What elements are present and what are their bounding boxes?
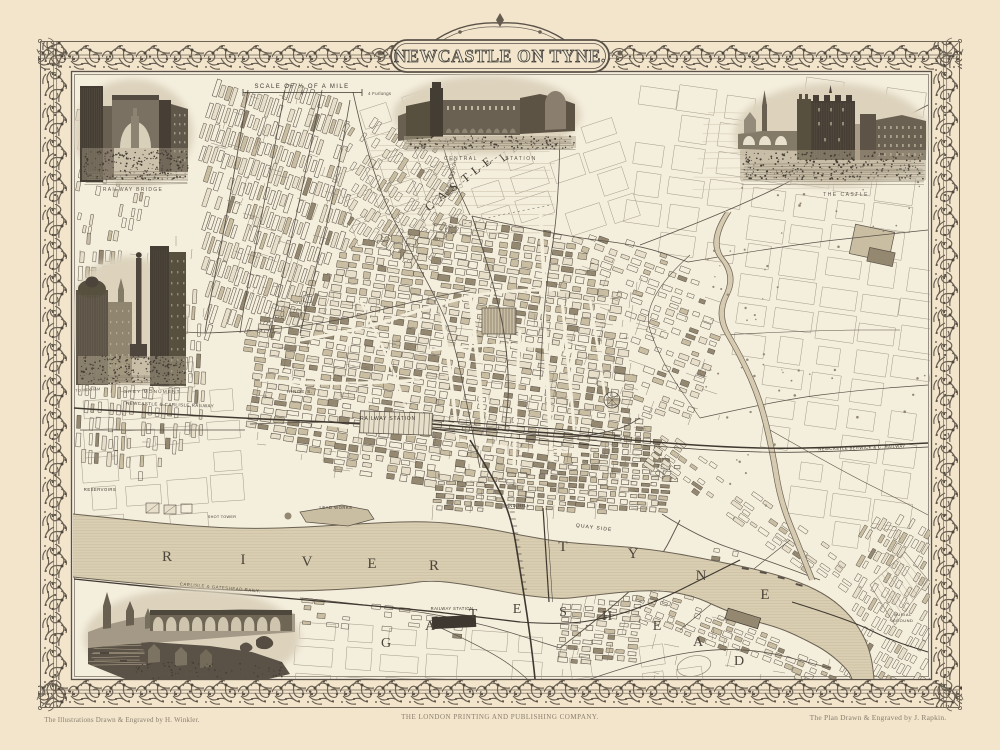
svg-text:A: A <box>693 635 704 650</box>
svg-text:D: D <box>734 654 744 669</box>
svg-text:SCALE OF ¼ OF A MILE: SCALE OF ¼ OF A MILE <box>254 84 349 90</box>
svg-text:RAILWAY STATION: RAILWAY STATION <box>431 606 474 611</box>
svg-text:LEAD WORKS: LEAD WORKS <box>320 505 353 510</box>
svg-text:V: V <box>302 554 313 570</box>
svg-text:R: R <box>162 549 172 565</box>
svg-text:Y: Y <box>628 546 639 562</box>
svg-text:THE LONDON PRINTING AND PUBLIS: THE LONDON PRINTING AND PUBLISHING COMPA… <box>401 713 599 721</box>
svg-text:S: S <box>559 605 567 620</box>
svg-text:BURIAL: BURIAL <box>894 612 912 617</box>
svg-text:E: E <box>760 587 769 603</box>
svg-text:HINDE S.: HINDE S. <box>287 389 313 394</box>
svg-text:A: A <box>425 619 436 634</box>
svg-text:CENTRAL: CENTRAL <box>444 156 478 162</box>
svg-text:T: T <box>558 539 567 555</box>
svg-text:4 Furlongs: 4 Furlongs <box>368 91 392 96</box>
svg-text:SAND HILL: SAND HILL <box>502 503 529 508</box>
svg-text:H: H <box>602 609 612 624</box>
svg-text:SHOT TOWER: SHOT TOWER <box>208 515 237 519</box>
svg-text:RESERVOIRS: RESERVOIRS <box>84 487 116 492</box>
svg-text:E: E <box>513 602 522 617</box>
svg-text:NEWCASTLE ON TYNE.: NEWCASTLE ON TYNE. <box>394 46 606 66</box>
svg-text:GROUND: GROUND <box>893 618 914 623</box>
svg-text:STATION: STATION <box>505 156 536 162</box>
svg-text:GREY MONUMENT: GREY MONUMENT <box>123 389 180 395</box>
svg-text:I: I <box>241 552 246 568</box>
svg-text:THE CASTLE: THE CASTLE <box>823 192 869 198</box>
svg-text:RAILWAY BRIDGE: RAILWAY BRIDGE <box>103 187 163 193</box>
svg-text:The Plan Drawn & Engraved by J: The Plan Drawn & Engraved by J. Rapkin. <box>810 713 947 722</box>
svg-text:HIGH LEVEL BRIDGE: HIGH LEVEL BRIDGE <box>148 672 209 677</box>
svg-text:E: E <box>367 556 376 572</box>
svg-text:G: G <box>381 636 391 651</box>
svg-text:R: R <box>429 558 439 574</box>
svg-text:The Illustrations Drawn & Engr: The Illustrations Drawn & Engraved by H.… <box>44 716 199 724</box>
svg-text:N: N <box>696 568 707 584</box>
svg-text:RAILWAY STATION: RAILWAY STATION <box>360 416 416 422</box>
svg-text:E: E <box>653 619 662 634</box>
